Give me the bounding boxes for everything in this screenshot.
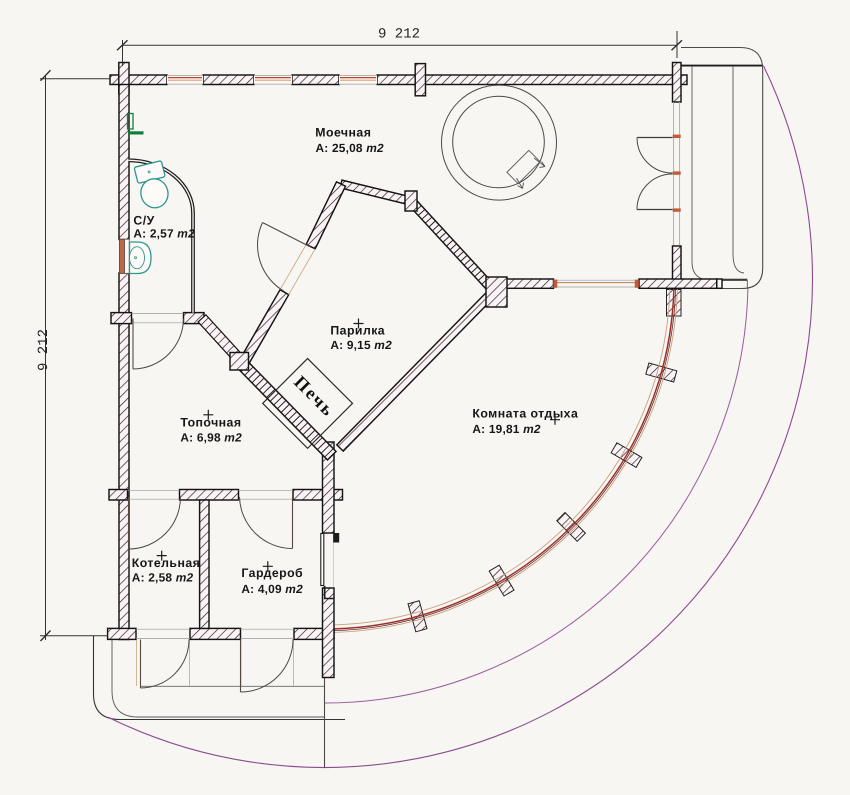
svg-text:Моечная: Моечная bbox=[315, 125, 371, 139]
svg-text:A: 6,98 m2: A: 6,98 m2 bbox=[180, 431, 242, 445]
svg-text:A: 25,08 m2: A: 25,08 m2 bbox=[316, 141, 384, 155]
svg-text:9 212: 9 212 bbox=[36, 329, 52, 371]
svg-text:A: 2,57 m2: A: 2,57 m2 bbox=[133, 227, 195, 241]
svg-text:Парилка: Парилка bbox=[330, 324, 385, 338]
svg-text:Комната отдыха: Комната отдыха bbox=[472, 406, 578, 420]
svg-text:A: 19,81 m2: A: 19,81 m2 bbox=[472, 422, 540, 436]
svg-text:Гардероб: Гардероб bbox=[241, 566, 303, 580]
svg-text:9 212: 9 212 bbox=[378, 27, 420, 43]
svg-text:A: 9,15 m2: A: 9,15 m2 bbox=[330, 338, 392, 352]
svg-text:A: 4,09 m2: A: 4,09 m2 bbox=[241, 582, 303, 596]
svg-text:A: 2,58 m2: A: 2,58 m2 bbox=[132, 571, 194, 585]
svg-text:С/У: С/У bbox=[133, 213, 154, 227]
svg-text:Котельная: Котельная bbox=[132, 556, 200, 570]
svg-text:Топочная: Топочная bbox=[180, 415, 241, 429]
